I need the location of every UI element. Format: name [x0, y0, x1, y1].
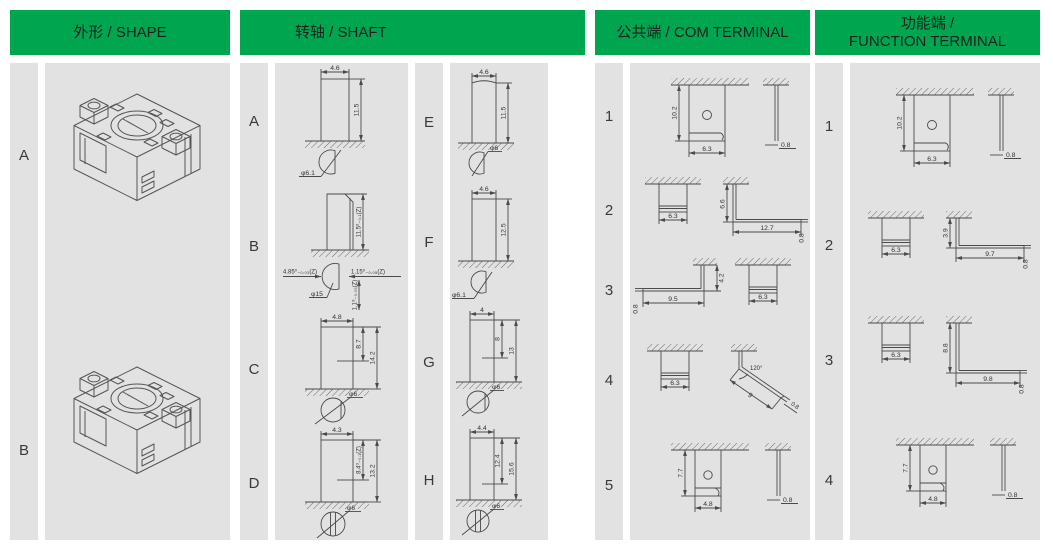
- dim: 6.3: [758, 294, 768, 301]
- dim: 14.2: [370, 351, 377, 364]
- dim: 0.8: [1019, 384, 1026, 394]
- dim: 0.8: [799, 233, 806, 243]
- dim: 4.6: [479, 69, 489, 76]
- fn-row-label: 1: [815, 63, 843, 190]
- dim: 6.3: [702, 146, 712, 153]
- shape-label-column: A B: [10, 63, 38, 540]
- shaft-row-label: H: [415, 421, 443, 540]
- fn-terminal-2-drawing: 6.3 3.9 9.7 0.8: [850, 206, 1040, 284]
- shaft-label-column-left: A B C D: [240, 63, 268, 540]
- dim: 4.4: [477, 425, 487, 432]
- dim: 8.4⁰₋₀.₁(Z): [356, 446, 363, 474]
- shaft-row-label: C: [240, 313, 268, 426]
- dim: 0.8: [1006, 152, 1016, 159]
- dim: 9.7: [985, 251, 995, 258]
- dim: φ6: [349, 391, 357, 398]
- fn-label-column: 1 2 3 4: [815, 63, 843, 540]
- dim: 11.5: [354, 103, 361, 116]
- dim: 0.8: [1023, 259, 1030, 269]
- fn-row-label: 3: [815, 300, 843, 420]
- dim: 9.8: [983, 376, 993, 383]
- dim: 10.2: [672, 106, 679, 119]
- shaft-drawing-a: 4.6 11.5 φ6.1: [275, 63, 408, 180]
- shaft-drawing-f: 4.6 12.5 φ6.1: [450, 185, 548, 300]
- shape-row-label: B: [10, 438, 38, 462]
- shaft-row-label: D: [240, 426, 268, 540]
- dim: φ6: [490, 145, 498, 152]
- com-row-label: 1: [595, 63, 623, 170]
- dim: 4.6: [330, 65, 340, 72]
- dim: 4.85⁰₋₀.₀₃(Z): [283, 269, 317, 276]
- com-row-label: 2: [595, 170, 623, 250]
- shaft-drawing-e: 4.6 11.5 φ6: [450, 67, 548, 179]
- shaft-drawing-panel-left: 4.6 11.5 φ6.1 11.5⁰₋₀.₁(Z) 4.85⁰₋₀.₀₃(Z)…: [275, 63, 408, 540]
- shaft-row-label: B: [240, 180, 268, 313]
- dim: φ6.1: [301, 170, 315, 177]
- dim: 6.3: [668, 213, 678, 220]
- dim: 4.8: [332, 314, 342, 321]
- com-terminal-5-drawing: 7.7 4.8 0.8: [631, 434, 809, 536]
- shaft-drawing-panel-right: 4.6 11.5 φ6 4.6 12.5 φ6.1: [450, 63, 548, 540]
- dim: 0.8: [1008, 492, 1018, 499]
- dim: 4.8: [928, 496, 938, 503]
- com-row-label: 3: [595, 250, 623, 330]
- dim: 4.6: [479, 186, 489, 193]
- com-drawing-panel: 10.2 6.3 0.8 6.3 6.6: [630, 63, 810, 540]
- dim: 6.3: [891, 247, 901, 254]
- fn-terminal-3-drawing: 6.3 8.8 9.8 0.8: [850, 311, 1040, 409]
- dim: 10.2: [897, 116, 904, 129]
- shape-a-drawing: [47, 78, 227, 228]
- function-terminal-header-zh: 功能端 /: [901, 15, 954, 32]
- dim: 12.5: [501, 223, 508, 236]
- shaft-label-column-right: E F G H: [415, 63, 443, 540]
- dim: 0.8: [633, 304, 640, 314]
- com-terminal-2-drawing: 6.3 6.6 12.7 0.8: [631, 172, 809, 248]
- shaft-drawing-g: 4 8 13 φ6: [450, 306, 548, 418]
- dim: φ6: [492, 503, 500, 510]
- dim: 11.5⁰₋₀.₁(Z): [356, 207, 363, 238]
- fn-terminal-4-drawing: 7.7 4.8 0.8: [850, 429, 1040, 531]
- dim: 6.3: [891, 352, 901, 359]
- dim: 13: [509, 347, 516, 355]
- dim: 6.3: [927, 156, 937, 163]
- shaft-header: 转轴 / SHAFT: [240, 10, 585, 55]
- dim: 8.7: [356, 339, 363, 349]
- com-terminal-header: 公共端 / COM TERMINAL: [595, 10, 810, 55]
- dim: 4: [480, 307, 484, 314]
- com-terminal-4-drawing: 6.3 120° 9 0.8: [631, 333, 809, 427]
- dim: 0.8: [789, 401, 800, 411]
- com-terminal-3-drawing: 0.8 9.5 4.2 6.3: [631, 253, 809, 327]
- shaft-drawing-b: 11.5⁰₋₀.₁(Z) 4.85⁰₋₀.₀₃(Z) 1.15⁰₋₀.₀₅(Z)…: [275, 180, 408, 313]
- shape-header-label: 外形 / SHAPE: [73, 24, 166, 41]
- shape-row-label: A: [10, 143, 38, 167]
- dim: 7.7: [903, 463, 910, 473]
- function-terminal-header-en: FUNCTION TERMINAL: [849, 33, 1006, 50]
- fn-row-label: 4: [815, 420, 843, 540]
- shape-drawing-panel: [45, 63, 230, 540]
- dim: 0.8: [783, 497, 793, 504]
- dim: 11.5: [501, 106, 508, 119]
- fn-terminal-1-drawing: 10.2 6.3 0.8: [850, 77, 1040, 177]
- dim: φ6: [347, 505, 355, 512]
- dim: φ15: [311, 291, 323, 298]
- dim: φ6.1: [452, 292, 466, 299]
- dim: 3.9: [943, 228, 950, 238]
- dim: 13.2: [370, 464, 377, 477]
- dim: 4.8: [703, 501, 713, 508]
- shaft-header-label: 转轴 / SHAFT: [295, 24, 387, 41]
- dim: 9.5: [668, 296, 678, 303]
- shape-header: 外形 / SHAPE: [10, 10, 230, 55]
- dim: 12.7: [760, 225, 773, 232]
- shaft-row-label: E: [415, 63, 443, 182]
- dim: 4.3: [332, 427, 342, 434]
- shaft-row-label: F: [415, 182, 443, 303]
- shaft-row-label: A: [240, 63, 268, 180]
- com-row-label: 4: [595, 330, 623, 430]
- com-row-label: 5: [595, 430, 623, 540]
- dim: 1.15⁰₋₀.₀₅(Z): [351, 269, 385, 276]
- dim: 120°: [750, 366, 763, 372]
- shaft-row-label: G: [415, 303, 443, 421]
- dim: 7.7: [678, 468, 685, 478]
- com-label-column: 1 2 3 4 5: [595, 63, 623, 540]
- dim: 1.1⁰₋₀.₀₅(Z): [352, 280, 359, 311]
- dim: 8: [495, 337, 502, 341]
- shaft-drawing-h: 4.4 12.4 15.6 φ6: [450, 424, 548, 537]
- com-terminal-1-drawing: 10.2 6.3 0.8: [631, 67, 809, 167]
- dim: 12.4: [495, 454, 502, 467]
- dim: 8.8: [943, 343, 950, 353]
- dim: 4.2: [719, 273, 726, 283]
- dim: 15.6: [509, 462, 516, 475]
- dim: 0.8: [781, 142, 791, 149]
- dim: 6.3: [670, 380, 680, 387]
- dim: 6.6: [720, 199, 727, 209]
- fn-drawing-panel: 10.2 6.3 0.8 6.3 3.9: [850, 63, 1040, 540]
- fn-row-label: 2: [815, 190, 843, 300]
- shape-b-drawing: [47, 351, 227, 501]
- shaft-drawing-d: 4.3 8.4⁰₋₀.₁(Z) 13.2 φ6: [275, 426, 408, 540]
- function-terminal-header: 功能端 / FUNCTION TERMINAL: [815, 10, 1040, 55]
- shaft-drawing-c: 4.8 8.7 14.2 φ6: [275, 313, 408, 426]
- dim: φ6: [492, 384, 500, 391]
- com-terminal-header-label: 公共端 / COM TERMINAL: [616, 24, 788, 41]
